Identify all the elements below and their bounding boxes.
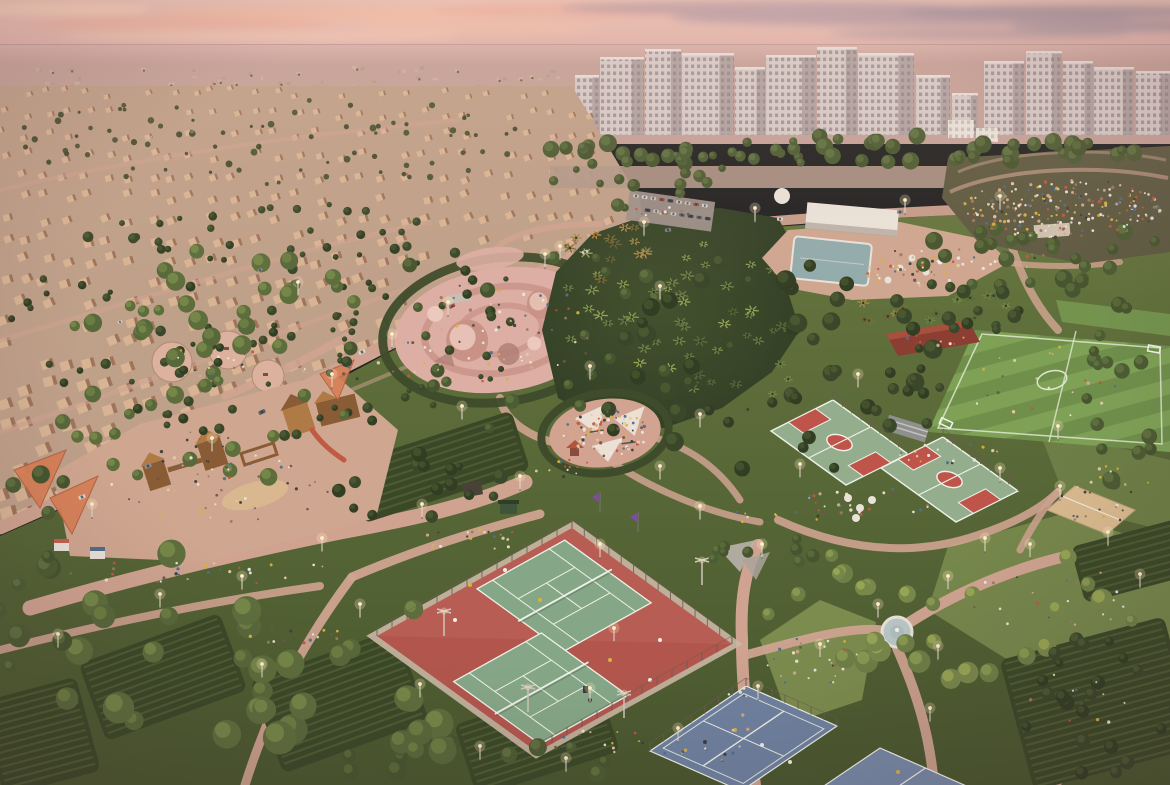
vignette <box>0 0 1170 785</box>
aerial-park-render <box>0 0 1170 785</box>
render-canvas <box>0 0 1170 785</box>
